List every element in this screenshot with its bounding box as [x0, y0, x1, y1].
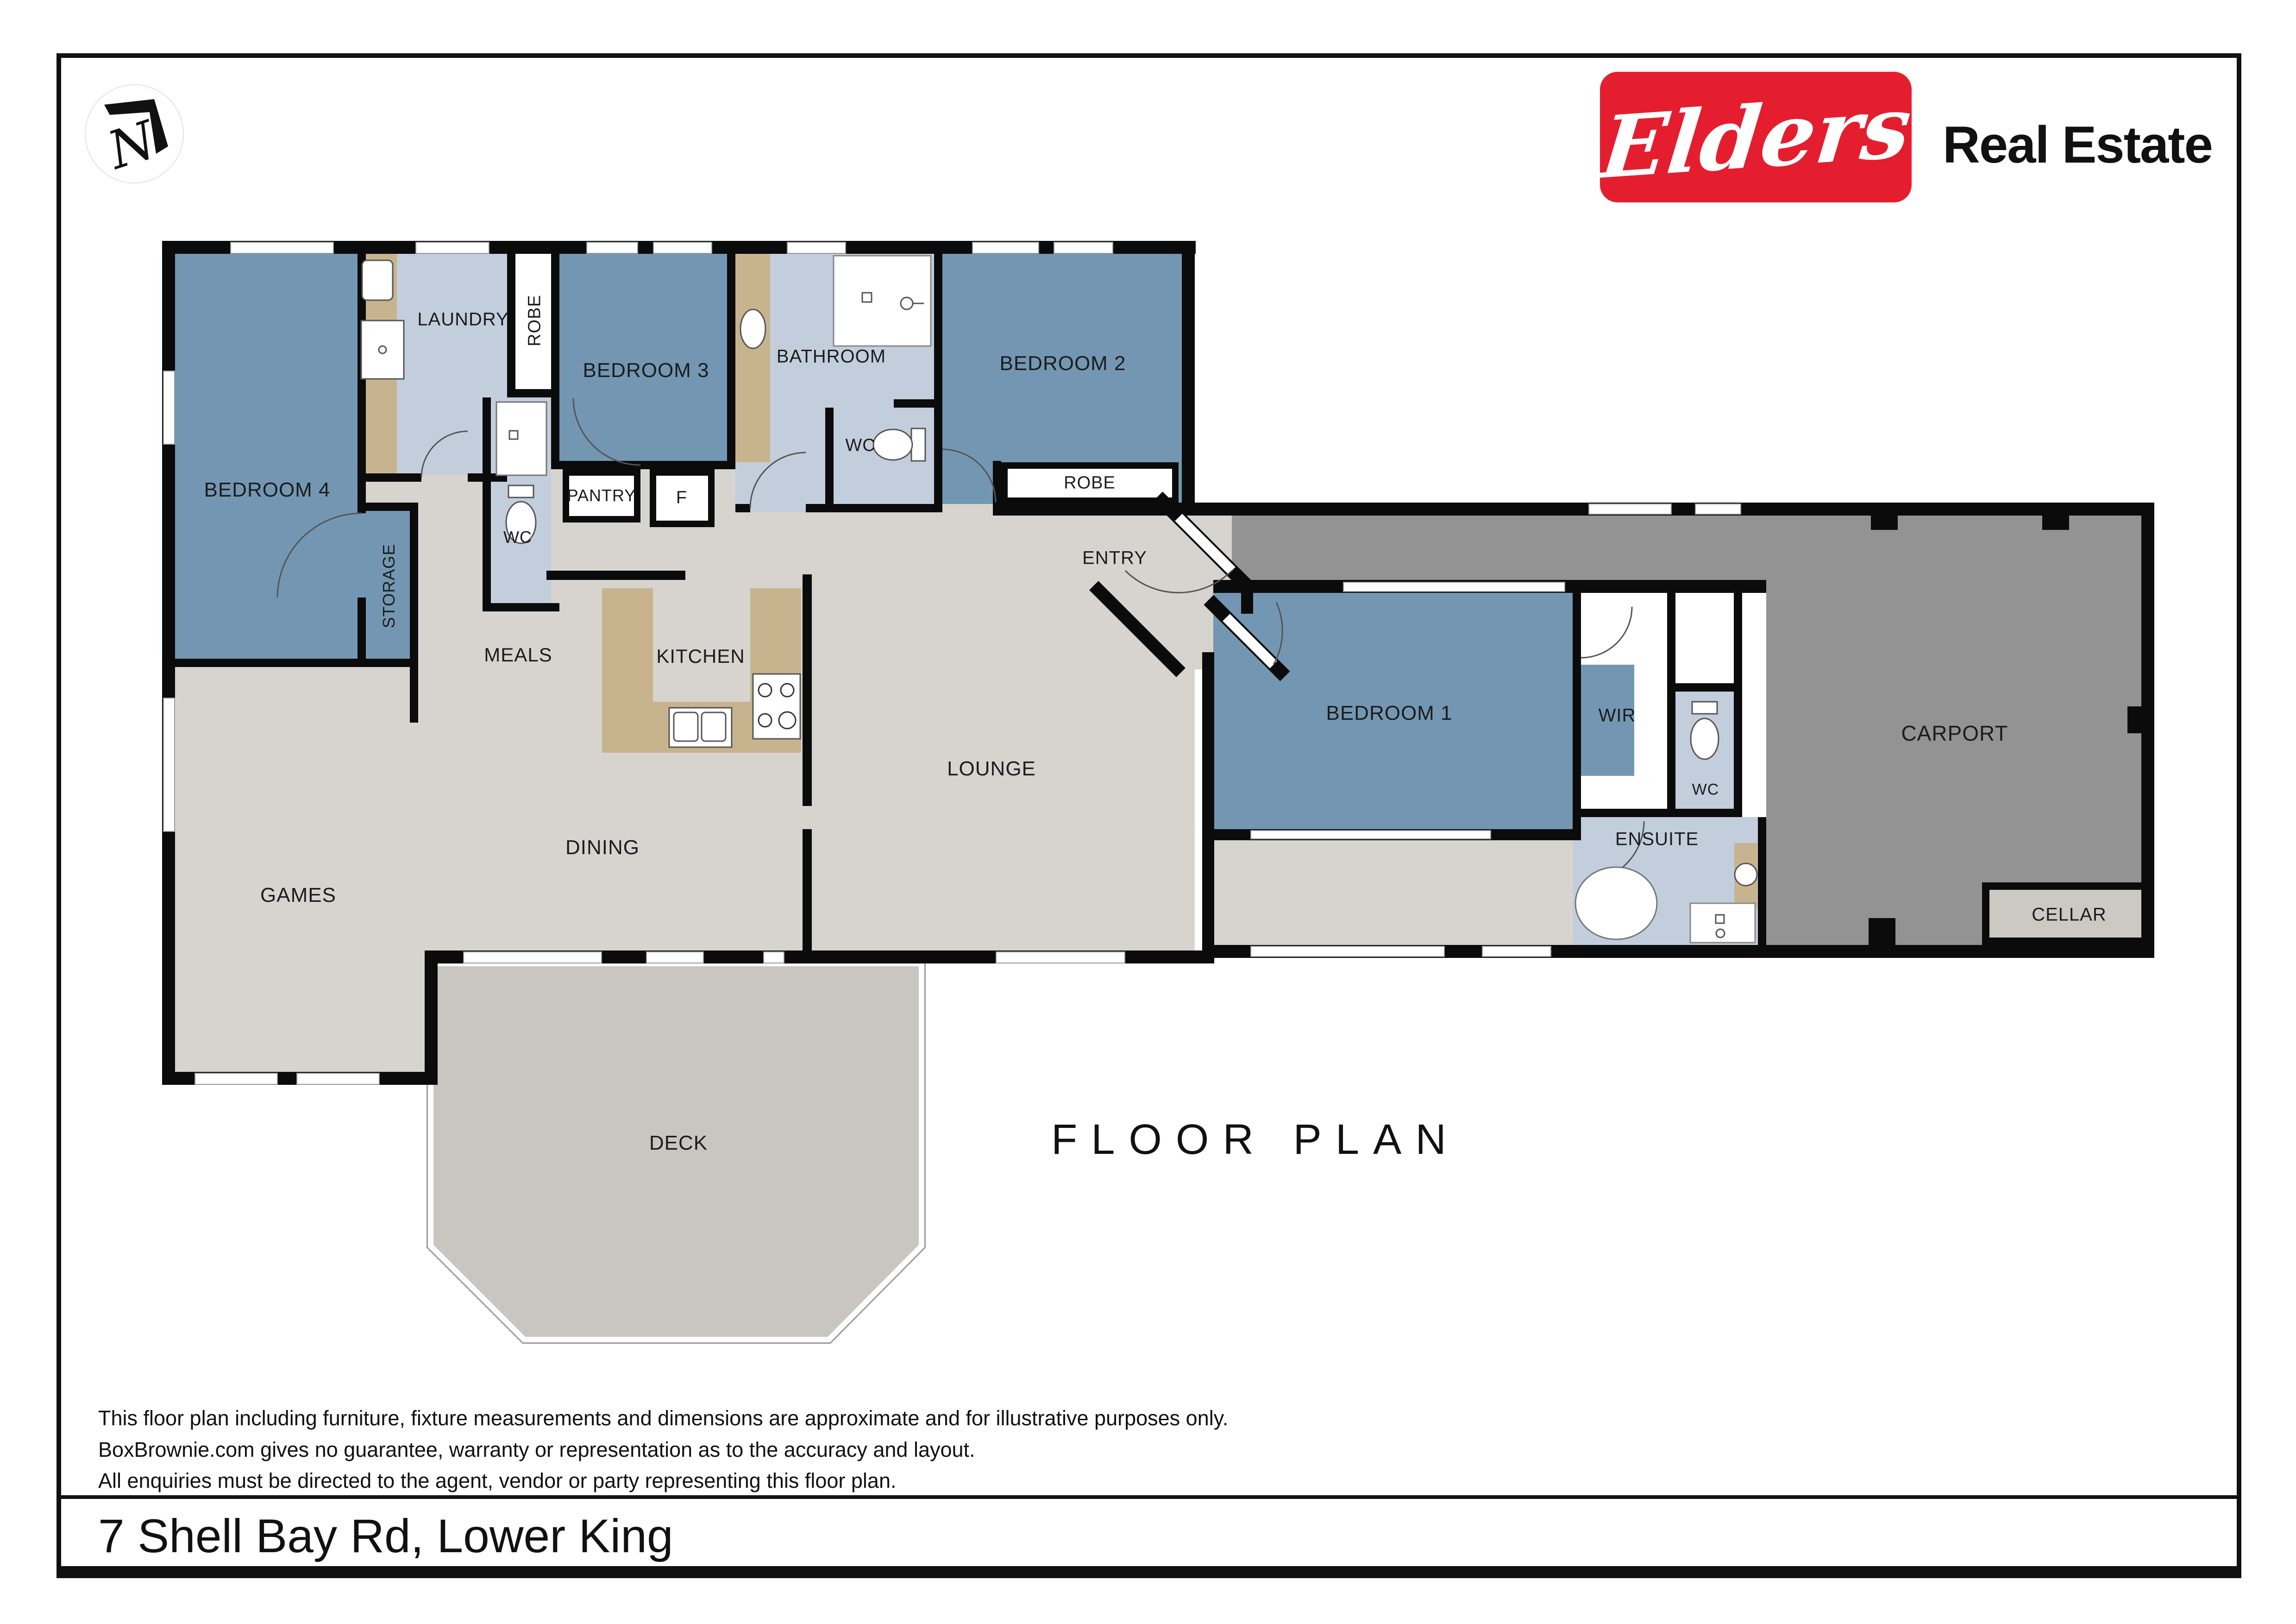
floor-plan-page: BEDROOM 4 LAUNDRY ROBE WC BEDROOM 3 PANT…: [0, 0, 2296, 1624]
page-border: [56, 53, 2241, 1578]
